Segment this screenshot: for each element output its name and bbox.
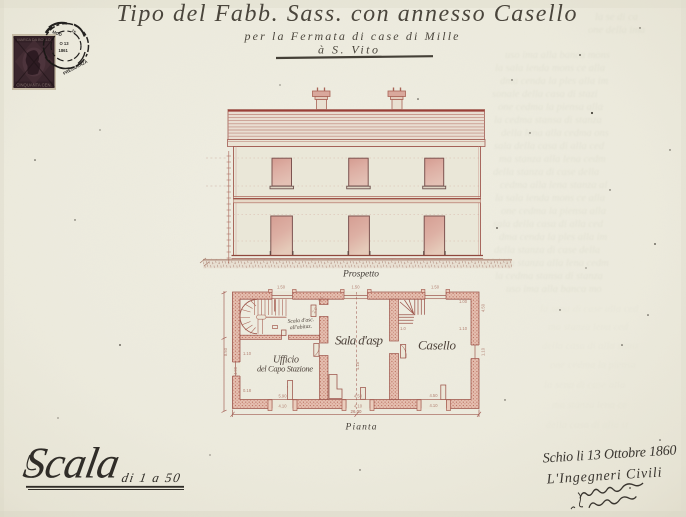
svg-text:4.50: 4.50 (481, 303, 486, 312)
svg-text:CINQUANTA CEN.: CINQUANTA CEN. (16, 83, 51, 88)
svg-text:4.10: 4.10 (279, 404, 288, 409)
svg-text:1.50: 1.50 (277, 284, 286, 289)
svg-text:4.10: 4.10 (354, 404, 363, 409)
svg-text:ma stanza alla lena cedm: ma stanza alla lena cedm (499, 154, 606, 165)
svg-text:4.00: 4.00 (233, 366, 238, 375)
svg-text:4.50: 4.50 (354, 394, 363, 399)
svg-text:della stanza di case della: della stanza di case della (493, 167, 599, 178)
svg-text:1.50: 1.50 (431, 284, 440, 289)
svg-text:ma stanza alla lena cedm: ma stanza alla lena cedm (502, 258, 609, 269)
svg-text:1861: 1861 (59, 48, 69, 53)
svg-text:la se di ca: la se di ca (595, 12, 638, 23)
svg-text:della casa di alla stanz: della casa di alla stanz (542, 341, 639, 352)
svg-text:ma stanza lena ced: ma stanza lena ced (548, 322, 629, 333)
svg-text:ma stanza lena ce: ma stanza lena ce (552, 400, 627, 411)
svg-text:4.10: 4.10 (430, 403, 439, 408)
svg-text:Casello: Casello (418, 338, 457, 353)
svg-text:la sena di case alla ced: la sena di case alla ced (540, 304, 639, 315)
svg-text:uso ima alla banca mo: uso ima alla banca mo (506, 284, 602, 295)
svg-text:1.10: 1.10 (243, 351, 252, 356)
svg-text:Prospetto: Prospetto (342, 270, 379, 280)
svg-text:della lena alla cedma ons: della lena alla cedma ons (501, 128, 609, 139)
svg-text:à S. Vito: à S. Vito (318, 43, 378, 57)
svg-text:O 13: O 13 (60, 41, 70, 46)
svg-text:5.90: 5.90 (279, 394, 288, 399)
svg-text:4.50: 4.50 (430, 393, 439, 398)
svg-text:sonale della casa di stazi: sonale della casa di stazi (492, 89, 598, 100)
svg-text:Scala: Scala (20, 438, 124, 488)
svg-text:uso ima alla banca mons: uso ima alla banca mons (505, 50, 610, 61)
svg-text:1.10: 1.10 (481, 347, 486, 356)
svg-text:one della ima: one della ima (588, 25, 645, 36)
svg-text:la sala ienda mons ce alla: la sala ienda mons ce alla (495, 63, 605, 74)
svg-text:dma cenda la ples alla im: dma cenda la ples alla im (499, 232, 608, 243)
svg-text:1.50: 1.50 (352, 284, 361, 289)
svg-text:la sena di case alla: la sena di case alla (544, 380, 625, 391)
svg-text:one cedma la piensa alla: one cedma la piensa alla (498, 102, 603, 113)
svg-text:della stanza di case della: della stanza di case della (494, 245, 600, 256)
svg-text:one cedma la piensa: one cedma la piensa (550, 360, 636, 371)
svg-text:cedma alla lena stanza al: cedma alla lena stanza al (500, 180, 607, 191)
svg-text:1.0: 1.0 (400, 326, 406, 331)
svg-text:del Capo Stazione: del Capo Stazione (257, 363, 313, 373)
svg-text:Sala d'asp: Sala d'asp (335, 333, 384, 348)
svg-text:sala della casa di alla ced: sala della casa di alla ced (493, 219, 604, 230)
svg-text:1.00: 1.00 (459, 299, 468, 304)
svg-text:one cedma la piensa alla: one cedma la piensa alla (501, 206, 606, 217)
svg-text:0.18: 0.18 (243, 388, 252, 393)
svg-text:la cedma stansa di stanza: la cedma stansa di stanza (494, 115, 602, 126)
svg-text:la sala ienda mons ce alla: la sala ienda mons ce alla (495, 193, 605, 204)
svg-text:26.00: 26.00 (351, 409, 363, 414)
svg-text:Pianta: Pianta (345, 422, 377, 432)
svg-text:la cedma stansa di stanza: la cedma stansa di stanza (495, 271, 603, 282)
svg-text:MARCA DA BOLLO: MARCA DA BOLLO (17, 38, 50, 42)
svg-text:1.10: 1.10 (459, 326, 468, 331)
svg-text:della casa di alla st: della casa di alla st (546, 420, 629, 431)
svg-text:dma cenda la ples alla im: dma cenda la ples alla im (500, 76, 609, 87)
svg-text:4.18: 4.18 (355, 361, 360, 370)
svg-text:sala della casa di alla ced: sala della casa di alla ced (494, 141, 605, 152)
